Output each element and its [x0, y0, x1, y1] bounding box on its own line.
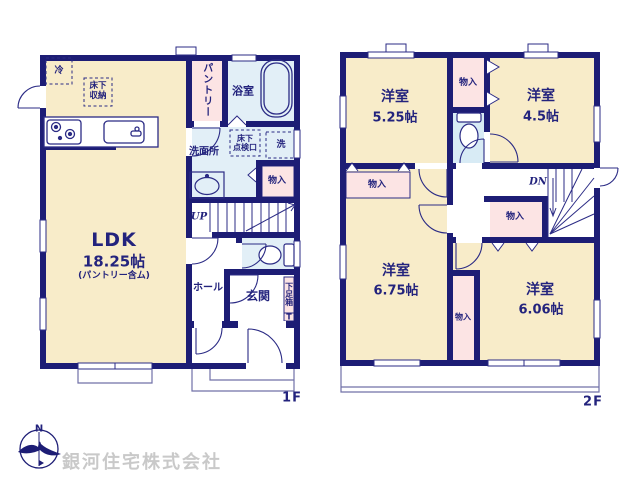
- label-closet-top: 物入: [459, 78, 477, 88]
- label-laundry: 洗: [276, 140, 285, 150]
- label-room4-size: 6.06帖: [518, 304, 563, 319]
- label-ldk-name: LDK: [91, 230, 137, 252]
- label-room4-name: 洋室: [526, 282, 554, 298]
- label-shoe-box: 下足箱: [284, 282, 293, 306]
- label-stairs-up: UP: [191, 211, 207, 223]
- floorplan-page: 冷 床下収納 パントリー 浴室 洗面所 床下点検口 洗 物入 UP ホール 玄関…: [0, 0, 640, 480]
- label-hatch-l2: 点検口: [233, 143, 257, 152]
- label-room2-name: 洋室: [527, 88, 555, 104]
- label-closet-left: 物入: [368, 180, 386, 190]
- label-floor-1f: 1F: [282, 392, 302, 407]
- label-room1-size: 5.25帖: [372, 112, 417, 127]
- label-closet-1f: 物入: [268, 176, 286, 186]
- toilet-1f: [259, 244, 294, 266]
- label-underfloor-storage-l2: 収納: [89, 92, 106, 102]
- company-name: 銀河住宅株式会社: [62, 448, 222, 474]
- label-entrance: 玄関: [246, 290, 270, 304]
- label-floor-2f: 2F: [583, 396, 603, 411]
- label-shoe-box-t: T: [286, 312, 291, 321]
- label-ldk-note: (パントリー含ム): [78, 271, 150, 281]
- label-stairs-down: DN: [529, 176, 547, 188]
- label-closet-side: 物入: [455, 312, 471, 321]
- label-hatch-l1: 床下: [233, 134, 257, 143]
- compass-logo: [18, 430, 61, 468]
- label-room3-name: 洋室: [382, 263, 410, 279]
- label-bathroom: 浴室: [232, 86, 254, 99]
- label-room2-size: 4.5帖: [523, 111, 559, 126]
- label-room1-name: 洋室: [381, 89, 409, 105]
- compass-north-label: N: [35, 424, 43, 435]
- label-room3-size: 6.75帖: [373, 285, 418, 300]
- label-hall: ホール: [193, 282, 223, 294]
- label-closet-mid: 物入: [506, 212, 524, 222]
- label-fridge: 冷: [54, 66, 63, 76]
- exterior-steps: [78, 366, 599, 392]
- label-ldk-size: 18.25帖: [83, 253, 145, 270]
- label-pantry: パントリー: [200, 63, 212, 118]
- label-washroom: 洗面所: [189, 146, 219, 158]
- kitchen-counter: [44, 117, 158, 147]
- label-inspection-hatch: 床下点検口: [233, 134, 257, 152]
- label-underfloor-storage: 床下収納: [89, 82, 106, 102]
